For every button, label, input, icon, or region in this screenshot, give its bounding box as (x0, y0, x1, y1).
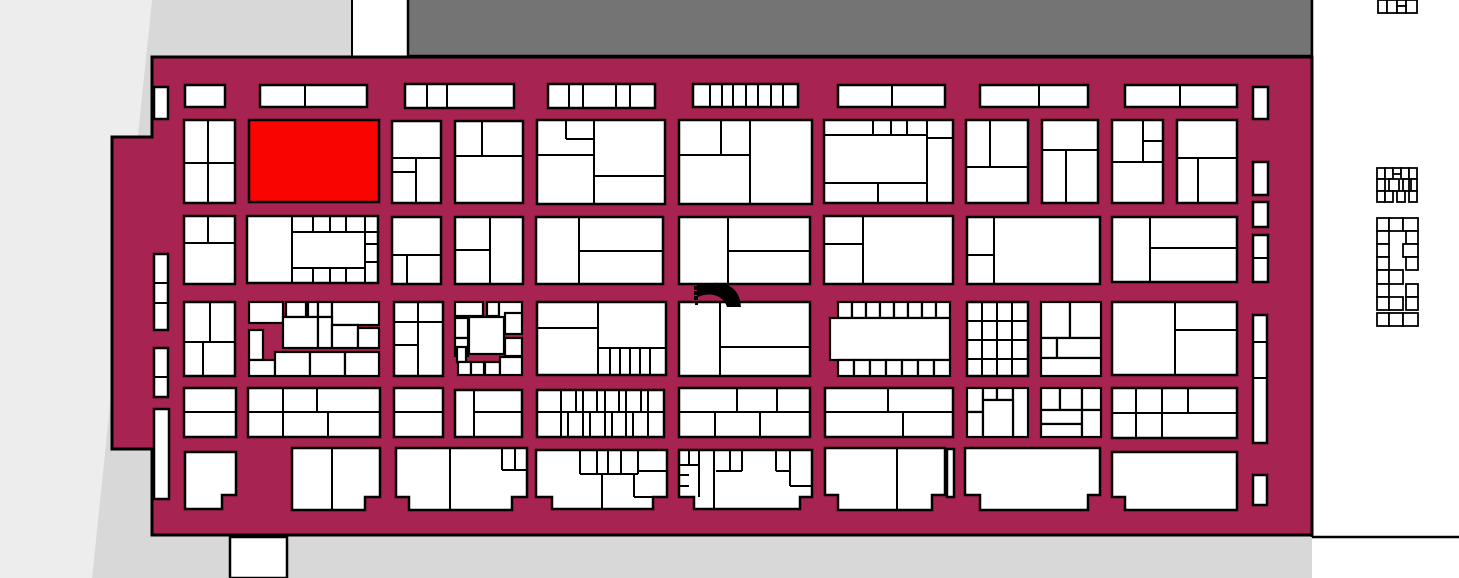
booth[interactable] (505, 313, 522, 334)
booth[interactable] (345, 352, 379, 376)
booth[interactable] (396, 448, 527, 510)
booth[interactable] (283, 317, 318, 348)
booth[interactable] (230, 537, 287, 578)
booth[interactable] (1060, 388, 1082, 410)
booth[interactable] (469, 317, 504, 354)
booth[interactable] (852, 302, 866, 318)
booth[interactable] (1041, 338, 1057, 358)
booth[interactable] (471, 362, 484, 375)
mini-plan-cell (1377, 297, 1389, 310)
booth[interactable] (154, 254, 168, 330)
mini-plan-cell (1397, 6, 1406, 13)
mini-plan-cell (1385, 168, 1393, 179)
booth[interactable] (455, 390, 522, 437)
mini-plan-cell (1377, 218, 1389, 231)
booth[interactable] (455, 318, 468, 338)
booth[interactable] (1253, 475, 1267, 505)
booth[interactable] (1082, 410, 1101, 437)
booth[interactable] (457, 347, 466, 362)
booth[interactable] (249, 360, 275, 376)
booth[interactable] (505, 338, 522, 356)
booth[interactable] (838, 360, 854, 376)
booth[interactable] (318, 302, 332, 317)
booth[interactable] (154, 348, 168, 397)
booth[interactable] (1112, 217, 1237, 282)
booth[interactable] (870, 360, 886, 376)
booth[interactable] (1070, 302, 1101, 338)
booth[interactable] (922, 302, 936, 318)
mini-plan-glyph (1378, 0, 1417, 13)
mini-plan-cell (1406, 284, 1418, 297)
booth[interactable] (1041, 424, 1082, 437)
booth[interactable] (154, 87, 168, 119)
booth[interactable] (902, 360, 918, 376)
booth[interactable] (537, 390, 664, 437)
booth[interactable] (825, 448, 945, 510)
mini-plan-cell (1411, 179, 1417, 191)
booth[interactable] (1253, 162, 1268, 195)
mini-plan-cell (1403, 244, 1418, 257)
booth[interactable] (485, 362, 500, 375)
booth[interactable] (1041, 410, 1082, 424)
mini-plan-cell (1389, 179, 1399, 191)
mini-plan-cell (1377, 244, 1389, 257)
booth[interactable] (332, 302, 379, 325)
booth[interactable] (1041, 302, 1070, 338)
booth[interactable] (318, 317, 332, 348)
mini-plan-cell (1377, 231, 1389, 244)
booth[interactable] (500, 357, 522, 375)
mini-plan-cell (1397, 191, 1405, 202)
direction-arrow-serration (694, 286, 698, 290)
floor-plan-viewer (0, 0, 1459, 578)
mini-plan-cell (1385, 191, 1393, 202)
booth[interactable] (967, 217, 1100, 284)
booth[interactable] (487, 302, 499, 316)
booth[interactable] (830, 318, 950, 360)
mini-plan-cell (1377, 257, 1389, 270)
booth[interactable] (308, 302, 318, 317)
booth[interactable] (894, 302, 908, 318)
booth[interactable] (1082, 388, 1101, 410)
mini-plan-cell (1406, 257, 1418, 270)
booth[interactable] (185, 85, 225, 107)
selected-booth[interactable] (249, 120, 379, 202)
mini-plan-cell (1387, 0, 1397, 13)
booth[interactable] (260, 85, 367, 107)
mini-plan-cell (1403, 313, 1418, 326)
booth[interactable] (455, 121, 523, 203)
booth[interactable] (249, 302, 283, 323)
booth[interactable] (866, 302, 880, 318)
booth[interactable] (967, 388, 983, 412)
mini-plan-cell (1377, 313, 1389, 326)
booth[interactable] (1177, 120, 1237, 203)
booth[interactable] (537, 302, 666, 375)
booth[interactable] (455, 302, 483, 316)
booth[interactable] (980, 85, 1088, 107)
booth[interactable] (1041, 388, 1060, 410)
direction-arrow-serration (694, 296, 698, 300)
booth[interactable] (934, 360, 950, 376)
booth[interactable] (310, 352, 345, 376)
mini-plan-cell (1403, 179, 1409, 191)
booth[interactable] (358, 328, 379, 348)
booth[interactable] (1013, 388, 1028, 437)
mini-plan-cell (1377, 270, 1389, 284)
mini-plan-cell (1389, 270, 1403, 284)
booth[interactable] (824, 120, 953, 203)
mini-plan-cell (1406, 231, 1418, 244)
booth[interactable] (286, 302, 306, 317)
mini-plan-cell (1409, 191, 1417, 202)
booth[interactable] (880, 302, 894, 318)
mini-plan-cell (1389, 297, 1403, 310)
booth[interactable] (965, 448, 1100, 510)
booth[interactable] (1042, 120, 1098, 203)
booth[interactable] (854, 360, 870, 376)
mini-plan-cell (1406, 0, 1417, 13)
booth[interactable] (249, 330, 263, 360)
booth[interactable] (947, 449, 954, 497)
booth[interactable] (548, 84, 655, 108)
booth[interactable] (983, 400, 1013, 437)
booth[interactable] (392, 217, 441, 284)
booth[interactable] (824, 216, 953, 284)
direction-arrow-serration (694, 291, 698, 295)
mini-plan-cell (1377, 284, 1389, 297)
booth[interactable] (838, 302, 852, 318)
booth[interactable] (405, 84, 514, 108)
mini-plan-cell (1377, 168, 1385, 179)
mini-plan-cell (1377, 179, 1385, 191)
floor-plan-canvas[interactable] (0, 0, 1459, 578)
booth[interactable] (966, 120, 1028, 203)
mini-plan-cell (1389, 313, 1403, 326)
direction-arrow-serration (695, 301, 698, 305)
booth[interactable] (1112, 452, 1237, 510)
mini-plan-glyph (1377, 168, 1417, 202)
mini-plan-cell (1378, 0, 1387, 13)
booth[interactable] (537, 120, 665, 204)
mini-plan-cell (1409, 168, 1417, 179)
booth[interactable] (886, 360, 902, 376)
booth[interactable] (184, 216, 235, 284)
booth[interactable] (1041, 358, 1101, 376)
booth[interactable] (1253, 202, 1268, 227)
booth[interactable] (275, 352, 310, 376)
booth[interactable] (679, 120, 812, 204)
booth[interactable] (332, 325, 358, 348)
booth[interactable] (1057, 338, 1101, 358)
mini-plan-cell (1401, 168, 1409, 179)
booth[interactable] (908, 302, 922, 318)
booth[interactable] (918, 360, 934, 376)
mini-plan-cell (1377, 191, 1385, 202)
booth[interactable] (967, 412, 983, 437)
mini-plan-cell (1406, 297, 1418, 310)
mini-plan-cell (1403, 218, 1418, 231)
booth[interactable] (1253, 87, 1268, 119)
booth[interactable] (154, 409, 169, 499)
booth[interactable] (679, 302, 810, 376)
booth[interactable] (184, 120, 235, 203)
booth[interactable] (458, 362, 471, 375)
booth[interactable] (983, 388, 997, 400)
booth[interactable] (997, 388, 1013, 400)
mini-plan-cell (1389, 218, 1403, 231)
mini-plan-cell (1393, 168, 1401, 174)
booth[interactable] (936, 302, 950, 318)
adjacent-hall-bar (408, 0, 1312, 56)
